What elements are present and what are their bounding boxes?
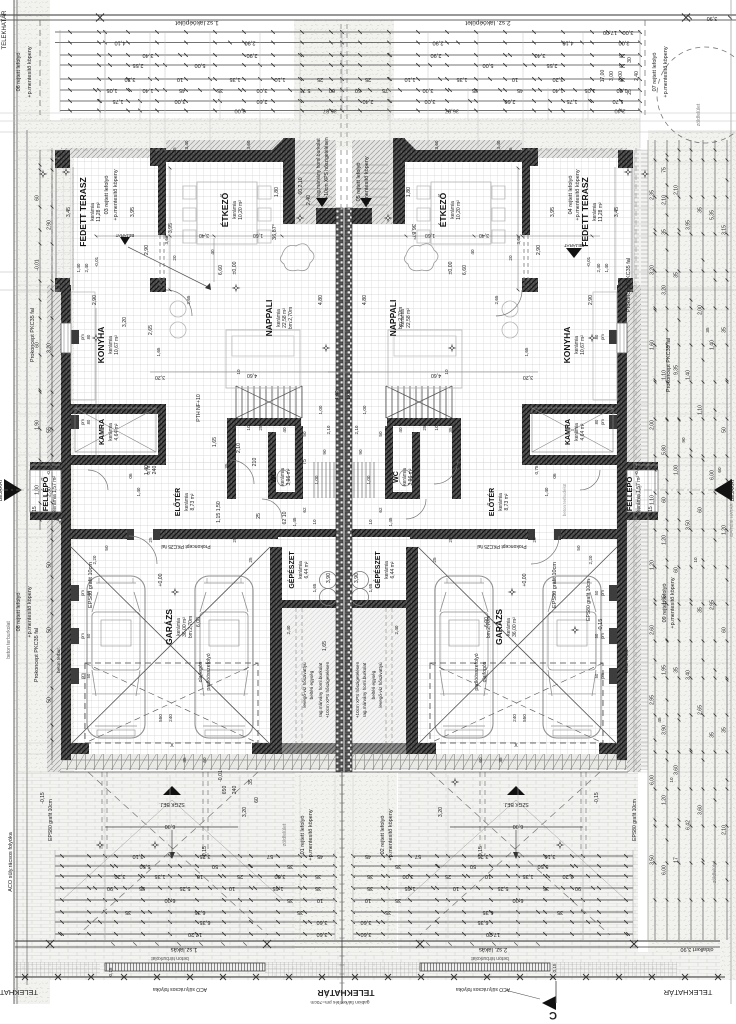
svg-text:3,00: 3,00 bbox=[257, 87, 268, 93]
svg-text:25: 25 bbox=[532, 537, 537, 543]
svg-text:EPS80 grafit 10cm: EPS80 grafit 10cm bbox=[552, 562, 558, 608]
svg-text:3,45: 3,45 bbox=[66, 207, 72, 217]
svg-text:kerámia 1,57 m²: kerámia 1,57 m² bbox=[636, 476, 642, 512]
svg-text:60 2,10: 60 2,10 bbox=[298, 177, 304, 194]
svg-text:2,90: 2,90 bbox=[431, 52, 442, 58]
svg-text:0,75: 0,75 bbox=[534, 465, 539, 474]
svg-text:3,96 m²: 3,96 m² bbox=[408, 468, 414, 485]
svg-text:6,00: 6,00 bbox=[710, 470, 716, 480]
svg-text:35: 35 bbox=[448, 427, 453, 433]
svg-text:45: 45 bbox=[317, 853, 323, 859]
svg-text:-0,15: -0,15 bbox=[202, 846, 208, 858]
svg-text:1,00: 1,00 bbox=[674, 465, 680, 475]
svg-text:1,00: 1,00 bbox=[334, 390, 339, 399]
svg-text:57: 57 bbox=[415, 853, 421, 859]
svg-text:NAPPALI: NAPPALI bbox=[388, 300, 398, 337]
svg-text:1,40: 1,40 bbox=[143, 87, 154, 93]
svg-text:FELLÉPŐ: FELLÉPŐ bbox=[41, 477, 50, 512]
svg-text:35: 35 bbox=[367, 873, 373, 879]
svg-text:-0,15: -0,15 bbox=[648, 506, 654, 518]
svg-text:35: 35 bbox=[674, 272, 680, 278]
svg-text:60: 60 bbox=[717, 467, 722, 473]
svg-text:ACO süly.rácsos folyóka: ACO süly.rácsos folyóka bbox=[8, 831, 14, 891]
svg-text:3,60: 3,60 bbox=[317, 931, 328, 937]
svg-text:+p.mentesítő köpeny: +p.mentesítő köpeny bbox=[670, 577, 676, 628]
svg-text:35: 35 bbox=[472, 87, 478, 93]
svg-text:2,65: 2,65 bbox=[148, 325, 154, 335]
svg-text:5 75: 5 75 bbox=[300, 87, 311, 93]
svg-text:20: 20 bbox=[172, 255, 177, 261]
svg-text:TELEKHATÁR: TELEKHATÁR bbox=[318, 988, 375, 998]
svg-text:-0,01: -0,01 bbox=[218, 770, 224, 782]
svg-text:KAMRA: KAMRA bbox=[99, 419, 106, 445]
svg-text:2,65: 2,65 bbox=[494, 295, 499, 304]
svg-text:25: 25 bbox=[258, 425, 263, 431]
svg-text:2,40: 2,40 bbox=[394, 625, 399, 634]
svg-text:3,50: 3,50 bbox=[686, 520, 692, 530]
svg-text:35: 35 bbox=[224, 463, 229, 469]
svg-text:35: 35 bbox=[662, 229, 668, 235]
svg-text:17,20: 17,20 bbox=[188, 931, 202, 937]
svg-text:0,75: 0,75 bbox=[146, 465, 151, 474]
svg-text:1,10: 1,10 bbox=[698, 405, 704, 415]
svg-text:bm:2,70m: bm:2,70m bbox=[288, 307, 294, 329]
svg-text:1,65: 1,65 bbox=[405, 885, 416, 891]
svg-text:17: 17 bbox=[674, 857, 680, 863]
svg-text:1,05: 1,05 bbox=[107, 87, 118, 93]
svg-text:10: 10 bbox=[312, 519, 317, 525]
svg-text:bm:2,70m: bm:2,70m bbox=[188, 616, 194, 638]
svg-text:4,10: 4,10 bbox=[115, 39, 126, 45]
svg-text:3,10: 3,10 bbox=[133, 853, 144, 859]
svg-text:90: 90 bbox=[358, 449, 363, 455]
svg-text:1,05: 1,05 bbox=[585, 87, 596, 93]
svg-text:zöldfelület: zöldfelület bbox=[282, 823, 288, 846]
svg-text:+p.mentesítő köpeny: +p.mentesítő köpeny bbox=[308, 809, 314, 860]
svg-text:8,73 m²: 8,73 m² bbox=[504, 493, 510, 510]
svg-text:3,90: 3,90 bbox=[354, 573, 360, 583]
svg-text:10: 10 bbox=[485, 873, 491, 879]
svg-text:Prokoncept PKC35 fal: Prokoncept PKC35 fal bbox=[626, 258, 632, 312]
svg-text:olajfogós: olajfogós bbox=[198, 661, 204, 682]
svg-text:75: 75 bbox=[302, 459, 308, 465]
svg-text:10: 10 bbox=[177, 76, 183, 82]
svg-text:4,64 m²: 4,64 m² bbox=[580, 423, 586, 440]
svg-text:EPS80 grafit 10cm: EPS80 grafit 10cm bbox=[48, 799, 54, 841]
svg-text:35: 35 bbox=[710, 732, 716, 738]
svg-text:60: 60 bbox=[674, 567, 680, 573]
svg-text:olajfogós: olajfogós bbox=[482, 661, 488, 682]
svg-text:3,00: 3,00 bbox=[425, 98, 436, 104]
svg-text:57: 57 bbox=[267, 853, 273, 859]
svg-text:45: 45 bbox=[179, 87, 185, 93]
svg-text:35: 35 bbox=[172, 147, 177, 153]
svg-text:5,80: 5,80 bbox=[662, 445, 668, 455]
svg-text:3,95: 3,95 bbox=[130, 207, 136, 217]
svg-text:25: 25 bbox=[256, 513, 262, 519]
svg-text:1,15 1,50: 1,15 1,50 bbox=[216, 501, 222, 523]
svg-text:FELLÉPŐ: FELLÉPŐ bbox=[625, 477, 634, 512]
svg-text:3,00: 3,00 bbox=[609, 71, 615, 81]
svg-text:FEDETT TERASZ: FEDETT TERASZ bbox=[580, 177, 590, 246]
svg-text:+p.mentesítő köpeny: +p.mentesítő köpeny bbox=[27, 586, 33, 637]
svg-text:GARÁZS: GARÁZS bbox=[494, 609, 504, 645]
svg-text:11,28 m²: 11,28 m² bbox=[598, 202, 604, 222]
svg-text:50: 50 bbox=[378, 431, 383, 437]
svg-text:35: 35 bbox=[367, 885, 373, 891]
svg-text:3,20: 3,20 bbox=[662, 285, 668, 295]
svg-text:-0,15: -0,15 bbox=[478, 846, 484, 858]
svg-text:1,80: 1,80 bbox=[406, 187, 412, 197]
svg-text:3,20: 3,20 bbox=[115, 873, 126, 879]
svg-text:6,35: 6,35 bbox=[478, 919, 489, 925]
svg-text:5,25: 5,25 bbox=[180, 885, 191, 891]
svg-text:50: 50 bbox=[302, 431, 307, 437]
svg-text:1,65: 1,65 bbox=[322, 641, 328, 651]
svg-text:6,35: 6,35 bbox=[200, 919, 211, 925]
svg-text:36,87°: 36,87° bbox=[272, 224, 278, 240]
svg-text:35: 35 bbox=[557, 909, 563, 915]
svg-text:50: 50 bbox=[47, 562, 53, 568]
svg-text:-0,01: -0,01 bbox=[94, 256, 99, 267]
svg-text:rag.márvány homl.burkolat: rag.márvány homl.burkolat bbox=[362, 662, 367, 717]
svg-text:SZGK BEJ.: SZGK BEJ. bbox=[503, 801, 529, 807]
svg-text:2,90: 2,90 bbox=[433, 39, 444, 45]
svg-text:60: 60 bbox=[254, 797, 260, 803]
svg-text:1,65: 1,65 bbox=[524, 347, 529, 356]
svg-text:3,40: 3,40 bbox=[686, 670, 692, 680]
svg-text:+p.mentesítő köpeny: +p.mentesítő köpeny bbox=[575, 169, 581, 220]
svg-text:10,20 m²: 10,20 m² bbox=[456, 200, 462, 220]
svg-text:06 rejtett lefolyó: 06 rejtett lefolyó bbox=[16, 53, 22, 92]
svg-text:6,35: 6,35 bbox=[483, 909, 494, 915]
svg-text:1,20: 1,20 bbox=[662, 795, 668, 805]
svg-text:17,00: 17,00 bbox=[603, 29, 617, 35]
svg-text:rag.márvány homl.burkolat: rag.márvány homl.burkolat bbox=[316, 138, 322, 198]
svg-text:07 rejtett lefolyó: 07 rejtett lefolyó bbox=[652, 53, 658, 92]
svg-text:60: 60 bbox=[355, 87, 361, 93]
svg-text:60: 60 bbox=[35, 195, 41, 201]
svg-text:x: x bbox=[170, 742, 174, 749]
svg-text:ÉTKEZŐ: ÉTKEZŐ bbox=[219, 192, 230, 227]
svg-text:10,20 m²: 10,20 m² bbox=[238, 200, 244, 220]
svg-text:3,15: 3,15 bbox=[722, 225, 728, 235]
svg-text:1,20: 1,20 bbox=[662, 535, 668, 545]
svg-text:EPS80 grafit 10cm: EPS80 grafit 10cm bbox=[88, 562, 94, 608]
svg-text:05 rejtett lefolyó: 05 rejtett lefolyó bbox=[356, 163, 362, 202]
svg-text:04 rejtett lefolyó: 04 rejtett lefolyó bbox=[568, 176, 574, 215]
svg-text:2,40: 2,40 bbox=[634, 71, 640, 81]
svg-text:-0,01: -0,01 bbox=[586, 256, 591, 267]
svg-text:beton terbur.: beton terbur. bbox=[56, 647, 61, 673]
svg-text:2,40: 2,40 bbox=[286, 625, 291, 634]
svg-text:62 10: 62 10 bbox=[282, 511, 288, 524]
svg-text:4,80: 4,80 bbox=[318, 295, 324, 305]
svg-text:WC: WC bbox=[393, 471, 400, 483]
svg-text:3,45: 3,45 bbox=[614, 207, 620, 217]
svg-text:6,00: 6,00 bbox=[662, 865, 668, 875]
svg-text:1,60: 1,60 bbox=[650, 340, 656, 350]
svg-text:pm: pm bbox=[80, 590, 85, 596]
svg-text:WC: WC bbox=[271, 471, 278, 483]
svg-text:beltéri egység: beltéri egység bbox=[371, 670, 376, 699]
svg-text:1,10: 1,10 bbox=[275, 76, 286, 82]
svg-text:zöldfelület: zöldfelület bbox=[712, 860, 718, 883]
svg-text:+p.mentesítő köpeny: +p.mentesítő köpeny bbox=[388, 809, 394, 860]
svg-text:3,95: 3,95 bbox=[168, 223, 174, 233]
svg-text:beton terbudelüt: beton terbudelüt bbox=[562, 483, 567, 516]
svg-text:beton térburkolat: beton térburkolat bbox=[151, 955, 189, 961]
svg-text:Prokoncept PKC25 fal: Prokoncept PKC25 fal bbox=[477, 543, 526, 549]
svg-text:30: 30 bbox=[627, 57, 633, 63]
svg-text:10: 10 bbox=[453, 885, 459, 891]
svg-text:2,00: 2,00 bbox=[650, 420, 656, 430]
svg-text:2,90: 2,90 bbox=[144, 245, 150, 255]
svg-text:35: 35 bbox=[248, 779, 254, 785]
svg-text:35: 35 bbox=[395, 863, 401, 869]
svg-text:50: 50 bbox=[47, 627, 53, 633]
svg-text:50: 50 bbox=[86, 673, 91, 678]
svg-text:1,40: 1,40 bbox=[76, 263, 81, 272]
svg-text:NAPPALI: NAPPALI bbox=[264, 300, 274, 337]
svg-text:10: 10 bbox=[512, 76, 518, 82]
svg-text:36,87: 36,87 bbox=[445, 107, 459, 113]
svg-text:80: 80 bbox=[86, 334, 91, 339]
svg-text:6,60: 6,60 bbox=[218, 265, 224, 275]
svg-text:35: 35 bbox=[698, 207, 704, 213]
svg-text:240: 240 bbox=[232, 786, 238, 795]
svg-text:3,90: 3,90 bbox=[326, 573, 332, 583]
svg-text:2,55: 2,55 bbox=[547, 62, 558, 68]
svg-text:3,96 m²: 3,96 m² bbox=[286, 468, 292, 485]
svg-text:35: 35 bbox=[508, 147, 513, 153]
svg-text:6,44 m²: 6,44 m² bbox=[390, 561, 396, 578]
svg-text:GARÁZS: GARÁZS bbox=[164, 609, 174, 645]
svg-text:02 rejtett lefolyó: 02 rejtett lefolyó bbox=[380, 816, 386, 855]
svg-text:+10cm XPS hőszigetelésen: +10cm XPS hőszigetelésen bbox=[324, 137, 330, 199]
svg-text:62: 62 bbox=[378, 507, 383, 513]
svg-text:1,65: 1,65 bbox=[212, 437, 218, 447]
svg-text:1,35: 1,35 bbox=[523, 873, 534, 879]
svg-text:1,95: 1,95 bbox=[662, 665, 668, 675]
svg-text:75: 75 bbox=[382, 87, 388, 93]
svg-text:+p.mentesítő köpeny: +p.mentesítő köpeny bbox=[663, 46, 669, 97]
svg-text:10,67 m²: 10,67 m² bbox=[580, 335, 586, 355]
svg-text:KONYHA: KONYHA bbox=[562, 327, 572, 364]
svg-text:BEJÁRAT: BEJÁRAT bbox=[729, 479, 736, 501]
svg-text:40: 40 bbox=[470, 249, 475, 255]
svg-text:5,00: 5,00 bbox=[195, 62, 206, 68]
svg-text:beton térburkolat: beton térburkolat bbox=[471, 955, 509, 961]
svg-text:GÉPÉSZET: GÉPÉSZET bbox=[287, 551, 296, 589]
svg-text:11,28 m²: 11,28 m² bbox=[96, 202, 102, 222]
svg-text:6,60: 6,60 bbox=[462, 265, 468, 275]
svg-text:36,00 m²: 36,00 m² bbox=[512, 617, 518, 637]
svg-text:levegő-víz hőszivattyú: levegő-víz hőszivattyú bbox=[378, 662, 383, 708]
svg-text:pm: pm bbox=[600, 590, 605, 596]
svg-text:ÉTKEZŐ: ÉTKEZŐ bbox=[437, 192, 448, 227]
svg-text:x: x bbox=[514, 742, 518, 749]
svg-text:pm: pm bbox=[600, 334, 605, 340]
svg-text:3,20: 3,20 bbox=[563, 873, 574, 879]
svg-text:1,10: 1,10 bbox=[405, 76, 416, 82]
svg-text:50: 50 bbox=[722, 427, 728, 433]
svg-text:550: 550 bbox=[158, 714, 163, 722]
svg-text:25: 25 bbox=[232, 537, 237, 543]
svg-text:10: 10 bbox=[317, 897, 323, 903]
svg-text:-0,01: -0,01 bbox=[35, 259, 41, 271]
svg-text:1,00: 1,00 bbox=[346, 390, 351, 399]
svg-text:ACO süly.rácsos folyóka: ACO süly.rácsos folyóka bbox=[153, 986, 207, 992]
svg-text:kerámia 1,57 m²: kerámia 1,57 m² bbox=[52, 476, 58, 512]
svg-text:C: C bbox=[549, 1009, 557, 1021]
svg-text:beton terbur.: beton terbur. bbox=[624, 647, 629, 673]
svg-text:10: 10 bbox=[365, 897, 371, 903]
svg-text:2,95: 2,95 bbox=[650, 695, 656, 705]
svg-text:1,65: 1,65 bbox=[312, 583, 317, 592]
svg-text:Prokoncept PKC25 fal: Prokoncept PKC25 fal bbox=[161, 543, 210, 549]
svg-text:60: 60 bbox=[202, 757, 207, 763]
svg-text:1,60: 1,60 bbox=[253, 232, 263, 238]
svg-text:+0,00: +0,00 bbox=[158, 573, 164, 586]
svg-text:1,70: 1,70 bbox=[613, 98, 624, 104]
svg-text:50: 50 bbox=[576, 545, 581, 551]
svg-text:20: 20 bbox=[508, 255, 513, 261]
svg-text:5,35: 5,35 bbox=[710, 210, 716, 220]
svg-text:zöldfelület: zöldfelület bbox=[696, 103, 702, 126]
svg-text:10: 10 bbox=[434, 425, 439, 431]
svg-text:35: 35 bbox=[287, 863, 293, 869]
svg-text:550: 550 bbox=[522, 714, 527, 722]
svg-text:09 rejtett lefolyó: 09 rejtett lefolyó bbox=[662, 584, 668, 623]
svg-text:+p.mentesítő köpeny: +p.mentesítő köpeny bbox=[27, 46, 33, 97]
svg-text:25: 25 bbox=[317, 76, 323, 82]
svg-text:1,35: 1,35 bbox=[155, 873, 166, 879]
svg-text:1,75: 1,75 bbox=[567, 98, 578, 104]
svg-text:2,90: 2,90 bbox=[247, 52, 258, 58]
svg-text:1,10: 1,10 bbox=[650, 495, 656, 505]
svg-text:1,00: 1,00 bbox=[362, 405, 367, 414]
svg-text:60: 60 bbox=[478, 757, 483, 763]
svg-text:35: 35 bbox=[498, 757, 503, 763]
svg-text:06: 06 bbox=[128, 473, 133, 479]
svg-text:45: 45 bbox=[517, 87, 523, 93]
svg-text:2.sz. lakóépület: 2.sz. lakóépület bbox=[465, 19, 510, 26]
svg-text:beltéri egység: beltéri egység bbox=[309, 670, 314, 699]
svg-text:1,80: 1,80 bbox=[617, 87, 628, 93]
svg-text:0,15: 0,15 bbox=[108, 967, 113, 976]
svg-text:25: 25 bbox=[365, 76, 371, 82]
svg-text:2,65: 2,65 bbox=[186, 295, 191, 304]
svg-text:-0,15: -0,15 bbox=[594, 792, 600, 804]
svg-text:3,00: 3,00 bbox=[275, 873, 286, 879]
svg-text:3,20: 3,20 bbox=[242, 807, 248, 817]
svg-text:35: 35 bbox=[543, 885, 549, 891]
svg-text:2,10: 2,10 bbox=[236, 443, 242, 453]
svg-text:EPS80 grafit 10cm: EPS80 grafit 10cm bbox=[586, 579, 592, 621]
svg-text:17,20: 17,20 bbox=[486, 931, 500, 937]
svg-text:-0,15: -0,15 bbox=[32, 506, 38, 518]
svg-text:25: 25 bbox=[248, 557, 253, 563]
svg-text:1.sz.lakóépület: 1.sz.lakóépület bbox=[175, 19, 219, 26]
svg-text:4,80: 4,80 bbox=[362, 295, 368, 305]
svg-text:Prokoncept PKC35 fal: Prokoncept PKC35 fal bbox=[34, 628, 40, 682]
svg-text:+10cm XPS hőszigetelésen: +10cm XPS hőszigetelésen bbox=[325, 661, 330, 718]
svg-text:210: 210 bbox=[252, 458, 258, 467]
svg-text:1,65: 1,65 bbox=[273, 885, 284, 891]
svg-text:pm: pm bbox=[600, 673, 605, 679]
svg-text:2,20: 2,20 bbox=[588, 555, 593, 564]
svg-text:35: 35 bbox=[722, 327, 728, 333]
svg-text:3,00: 3,00 bbox=[235, 107, 246, 113]
svg-text:1,45: 1,45 bbox=[388, 517, 393, 526]
svg-text:60: 60 bbox=[662, 497, 668, 503]
svg-text:50: 50 bbox=[470, 863, 476, 869]
svg-text:35: 35 bbox=[232, 427, 237, 433]
svg-text:2,00: 2,00 bbox=[698, 305, 704, 315]
svg-text:2,20: 2,20 bbox=[92, 555, 97, 564]
svg-text:25: 25 bbox=[619, 52, 625, 58]
svg-text:50: 50 bbox=[212, 863, 218, 869]
svg-text:50: 50 bbox=[47, 697, 53, 703]
svg-text:3,90: 3,90 bbox=[662, 725, 668, 735]
svg-text:2,10: 2,10 bbox=[326, 425, 331, 434]
svg-text:80: 80 bbox=[594, 334, 599, 339]
svg-text:pm: pm bbox=[600, 633, 605, 639]
svg-text:2,10: 2,10 bbox=[354, 425, 359, 434]
svg-text:35: 35 bbox=[674, 667, 680, 673]
svg-text:beton terburkolat: beton terburkolat bbox=[6, 621, 12, 659]
svg-text:25: 25 bbox=[627, 89, 633, 95]
svg-text:10: 10 bbox=[368, 519, 373, 525]
svg-text:35: 35 bbox=[125, 909, 131, 915]
svg-text:SZGK BEJ.: SZGK BEJ. bbox=[159, 801, 185, 807]
svg-text:KONYHA: KONYHA bbox=[96, 327, 106, 364]
svg-text:pm: pm bbox=[80, 673, 85, 679]
svg-text:ÉPÍTÉSI HATÁR: ÉPÍTÉSI HATÁR bbox=[728, 503, 734, 537]
svg-text:1,65: 1,65 bbox=[156, 347, 161, 356]
svg-text:35: 35 bbox=[456, 463, 461, 469]
svg-text:3,00: 3,00 bbox=[618, 71, 624, 81]
svg-text:50: 50 bbox=[594, 590, 599, 595]
svg-text:PTH NF+10: PTH NF+10 bbox=[196, 394, 202, 422]
svg-text:padlóösszefolyó: padlóösszefolyó bbox=[206, 653, 212, 690]
svg-text:2,40: 2,40 bbox=[615, 107, 626, 113]
svg-text:pm: pm bbox=[80, 633, 85, 639]
svg-text:1,65: 1,65 bbox=[368, 583, 373, 592]
svg-text:2,60: 2,60 bbox=[650, 625, 656, 635]
svg-text:60: 60 bbox=[698, 507, 704, 513]
svg-text:4,10: 4,10 bbox=[563, 39, 574, 45]
svg-text:2,40: 2,40 bbox=[596, 263, 601, 272]
svg-text:3,40: 3,40 bbox=[479, 232, 489, 238]
svg-text:17,00: 17,00 bbox=[600, 70, 606, 83]
svg-text:25: 25 bbox=[619, 62, 625, 68]
svg-text:1,90: 1,90 bbox=[35, 420, 41, 430]
svg-text:62: 62 bbox=[302, 507, 307, 513]
svg-text:TELEKHATÁR: TELEKHATÁR bbox=[663, 988, 712, 997]
svg-text:3,00: 3,00 bbox=[403, 873, 414, 879]
svg-text:1,40: 1,40 bbox=[686, 370, 692, 380]
svg-text:2,90: 2,90 bbox=[47, 220, 53, 230]
svg-text:4,60: 4,60 bbox=[247, 372, 257, 378]
svg-text:45: 45 bbox=[657, 717, 662, 723]
svg-text:4,64 m²: 4,64 m² bbox=[114, 423, 120, 440]
svg-text:1,35: 1,35 bbox=[230, 76, 241, 82]
svg-text:2,65: 2,65 bbox=[698, 705, 704, 715]
svg-text:55: 55 bbox=[47, 427, 53, 433]
svg-text:ELŐTÉR: ELŐTÉR bbox=[173, 488, 182, 516]
